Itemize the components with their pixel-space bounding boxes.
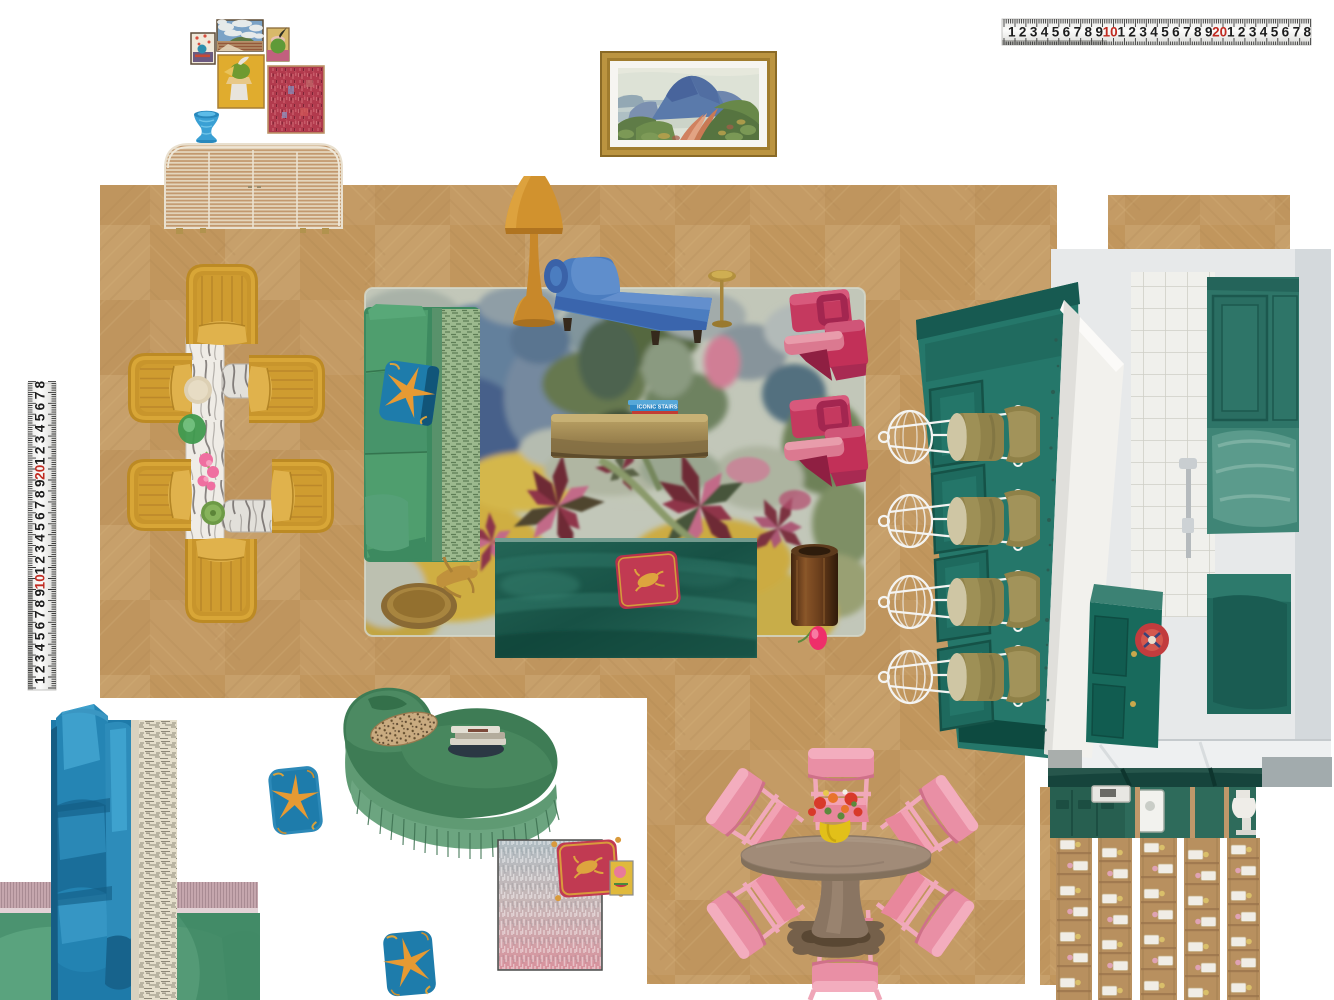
svg-text:5: 5: [33, 413, 48, 421]
svg-text:1: 1: [33, 457, 48, 465]
svg-text:3: 3: [33, 435, 48, 443]
svg-text:ICONIC STAIRS: ICONIC STAIRS: [637, 405, 678, 411]
svg-text:6: 6: [1282, 25, 1290, 40]
svg-text:4: 4: [33, 643, 48, 651]
svg-text:5: 5: [1161, 25, 1169, 40]
svg-text:8: 8: [33, 599, 48, 607]
svg-text:8: 8: [1085, 25, 1093, 40]
svg-text:3: 3: [1249, 25, 1257, 40]
svg-text:3: 3: [1030, 25, 1038, 40]
svg-text:5: 5: [33, 523, 48, 531]
svg-text:2: 2: [33, 556, 48, 564]
svg-text:2: 2: [1019, 25, 1027, 40]
svg-text:3: 3: [33, 654, 48, 662]
svg-text:20: 20: [33, 465, 48, 480]
svg-text:6: 6: [1172, 25, 1180, 40]
svg-text:4: 4: [33, 424, 48, 432]
svg-text:7: 7: [33, 392, 48, 400]
svg-text:20: 20: [1212, 25, 1227, 40]
svg-text:1: 1: [1227, 25, 1235, 40]
svg-text:1: 1: [33, 567, 48, 575]
svg-text:5: 5: [1052, 25, 1060, 40]
svg-text:3: 3: [1139, 25, 1147, 40]
svg-text:3: 3: [33, 545, 48, 553]
svg-text:2: 2: [33, 666, 48, 674]
svg-text:7: 7: [1183, 25, 1191, 40]
svg-text:2: 2: [33, 447, 48, 455]
svg-text:4: 4: [1041, 25, 1049, 40]
svg-text:10: 10: [33, 574, 48, 589]
svg-text:5: 5: [1271, 25, 1279, 40]
svg-text:6: 6: [1063, 25, 1071, 40]
svg-text:4: 4: [1260, 25, 1268, 40]
svg-text:7: 7: [1074, 25, 1082, 40]
svg-text:1: 1: [33, 676, 48, 684]
svg-text:4: 4: [33, 534, 48, 542]
svg-text:1: 1: [1008, 25, 1016, 40]
svg-text:4: 4: [1150, 25, 1158, 40]
svg-text:8: 8: [1304, 25, 1312, 40]
svg-text:8: 8: [1194, 25, 1202, 40]
svg-text:8: 8: [33, 380, 48, 388]
svg-text:2: 2: [1128, 25, 1136, 40]
svg-text:1: 1: [1117, 25, 1125, 40]
svg-text:7: 7: [33, 501, 48, 509]
svg-text:7: 7: [1293, 25, 1301, 40]
svg-text:8: 8: [33, 490, 48, 498]
svg-text:7: 7: [33, 611, 48, 619]
svg-text:6: 6: [33, 512, 48, 520]
svg-text:5: 5: [33, 632, 48, 640]
svg-text:10: 10: [1103, 25, 1118, 40]
svg-text:6: 6: [33, 621, 48, 629]
svg-text:2: 2: [1238, 25, 1246, 40]
svg-text:6: 6: [33, 402, 48, 410]
